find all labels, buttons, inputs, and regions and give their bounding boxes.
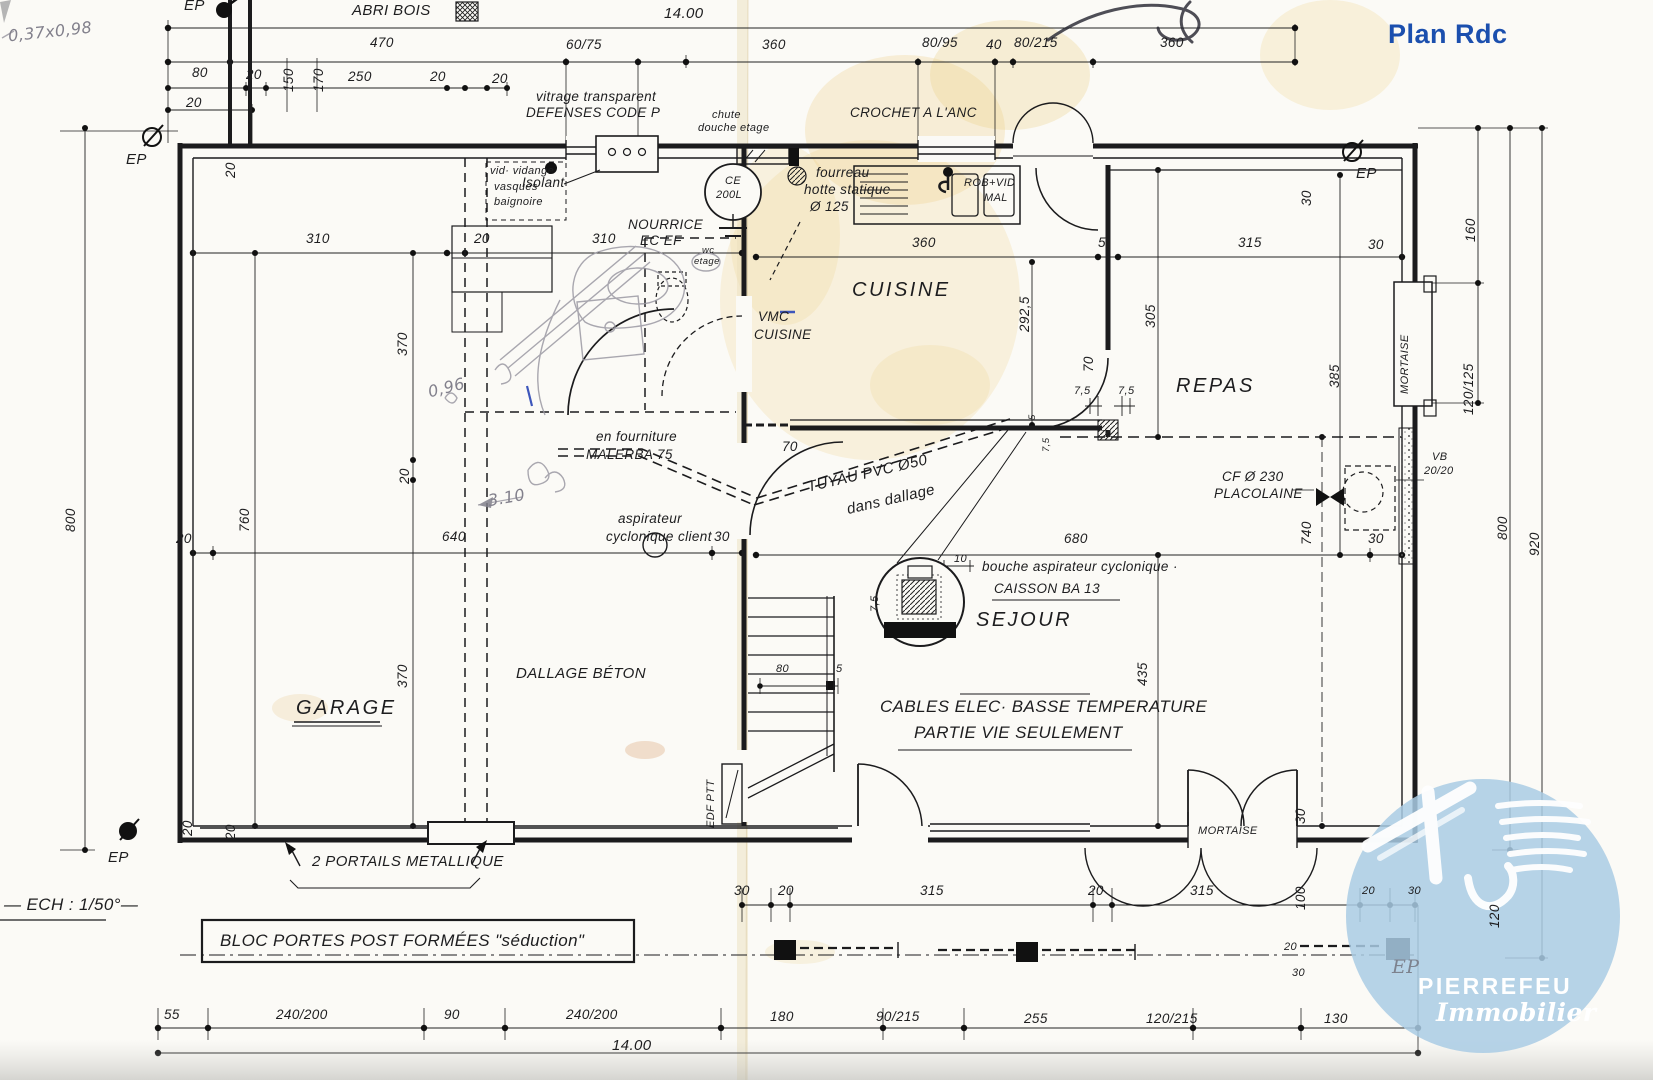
dim-d30: 30: [1294, 808, 1308, 824]
label-chute-1: chute: [712, 110, 741, 122]
dim-10: 10: [954, 554, 967, 566]
dim-b30-c: 30: [1408, 886, 1421, 898]
dim-75-c: 7,5: [1042, 438, 1052, 452]
dim-360-b: 360: [1160, 36, 1184, 50]
dim-75-a: 7,5: [1074, 386, 1091, 398]
dim-800-left: 800: [64, 508, 78, 532]
dim-370-b: 370: [396, 664, 410, 688]
label-fourreau-3: Ø 125: [810, 200, 849, 214]
dim-292-5: 292,5: [1018, 296, 1032, 332]
dim-760: 760: [238, 508, 252, 532]
dim-640: 640: [442, 530, 466, 544]
room-garage: GARAGE: [296, 698, 397, 719]
label-fourreau-1: fourreau: [816, 166, 869, 180]
dim-20-wall-b: 20: [224, 824, 238, 840]
dim-d100: 100: [1294, 886, 1308, 910]
dim-k360: 360: [912, 236, 936, 250]
dim-b30: 30: [734, 884, 750, 898]
dim-overall-bottom: 14.00: [612, 1038, 652, 1054]
dim-m30: 30: [714, 530, 730, 544]
label-rob-1: ROB+VID: [964, 178, 1015, 190]
room-cuisine: CUISINE: [852, 280, 951, 301]
dim-20-row: 20: [474, 232, 490, 246]
dim-70-hall: 70: [782, 440, 798, 454]
label-mortaise-bottom: MORTAISE: [1198, 826, 1258, 838]
label-rob-2: MAL: [984, 193, 1008, 205]
dim-800-right: 800: [1496, 516, 1510, 540]
label-dallage: DALLAGE BÉTON: [516, 666, 646, 682]
label-malerba-1: en fourniture: [596, 430, 677, 444]
label-cf-2: PLACOLAINE: [1214, 487, 1303, 501]
ep-marker-logo: EP: [1392, 958, 1419, 978]
dim-150: 150: [282, 68, 296, 92]
dim-20-mid: 20: [398, 468, 412, 484]
label-portails: 2 PORTAILS METALLIQUE: [312, 854, 504, 870]
dim-385: 385: [1328, 364, 1342, 388]
page-title: Plan Rdc: [1388, 20, 1508, 48]
dim-f55: 55: [164, 1008, 180, 1022]
dim-80-95: 80/95: [922, 36, 958, 50]
label-cf-1: CF Ø 230: [1222, 470, 1283, 484]
dim-20-a: 20: [246, 68, 262, 82]
label-crochet: CROCHET A L'ANC: [850, 106, 977, 120]
dim-370-a: 370: [396, 332, 410, 356]
label-wc-1: wc: [702, 246, 714, 256]
label-vb-2: 20/20: [1424, 466, 1454, 478]
room-sejour: SEJOUR: [976, 610, 1072, 631]
dim-170: 170: [312, 68, 326, 92]
ep-marker-top: EP: [184, 0, 205, 14]
staircase: [748, 596, 834, 798]
dim-160: 160: [1464, 218, 1478, 242]
dim-435: 435: [1136, 662, 1150, 686]
dim-80-215: 80/215: [1014, 36, 1058, 50]
dim-b20-a: 20: [778, 884, 794, 898]
label-cables-1: CABLES ELEC· BASSE TEMPERATURE: [880, 698, 1207, 716]
dim-k315: 315: [1238, 236, 1262, 250]
label-bouche: bouche aspirateur cyclonique ·: [982, 560, 1178, 574]
dim-40: 40: [986, 38, 1002, 52]
dim-20-wall-a: 20: [181, 820, 195, 836]
dim-k5: 5: [1098, 236, 1106, 250]
terrace-posts: [774, 938, 1410, 962]
dim-75-circle: 7,5: [870, 596, 882, 613]
dim-920: 920: [1528, 532, 1542, 556]
label-nourrice-1: NOURRICE: [628, 218, 703, 232]
room-repas: REPAS: [1176, 376, 1255, 397]
label-mortaise-right: MORTAISE: [1400, 334, 1412, 394]
dim-f180: 180: [770, 1010, 794, 1024]
dim-f120-215: 120/215: [1146, 1012, 1198, 1026]
dim-m20: 20: [176, 532, 192, 546]
dim-310-a: 310: [306, 232, 330, 246]
dim-stair-5: 5: [836, 664, 843, 676]
dim-f90-215: 90/215: [876, 1010, 920, 1024]
label-aspirateur-2: cyclonique client: [606, 530, 712, 544]
dim-305: 305: [1144, 304, 1158, 328]
dim-20-corner: 20: [224, 162, 238, 178]
dim-20-b: 20: [430, 70, 446, 84]
label-vmc-2: CUISINE: [754, 328, 812, 342]
dim-360-a: 360: [762, 38, 786, 52]
dim-f90: 90: [444, 1008, 460, 1022]
label-vb-1: VB: [1432, 452, 1447, 464]
ep-marker-left: EP: [126, 152, 147, 168]
label-edf-ptt: EDF PTT: [706, 780, 718, 828]
dim-f240-b: 240/200: [566, 1008, 618, 1022]
dim-5-b: 5: [1028, 414, 1038, 420]
dim-overall-top: 14.00: [664, 6, 704, 22]
dim-f130: 130: [1324, 1012, 1348, 1026]
logo-brand-name: PIERREFEU: [1418, 974, 1572, 998]
label-echelle: — ECH : 1/50°—: [4, 896, 138, 914]
label-isolant: Isolant: [522, 176, 565, 190]
dim-b30-d: 30: [1292, 968, 1305, 980]
dim-20-c: 20: [492, 72, 508, 86]
dim-b315-b: 315: [1190, 884, 1214, 898]
dim-b315-a: 315: [920, 884, 944, 898]
logo-brand-tagline: Immobilier: [1436, 1000, 1596, 1026]
dim-30-top: 30: [1300, 190, 1314, 206]
dim-70-kitchen: 70: [1082, 356, 1096, 372]
label-bloc-portes: BLOC PORTES POST FORMÉES "séduction": [220, 932, 584, 950]
label-abri-bois: ABRI BOIS: [352, 3, 431, 19]
label-wc-2: etage: [694, 257, 720, 267]
dim-120-125: 120/125: [1462, 363, 1476, 415]
ep-marker-bottom-left: EP: [108, 850, 129, 866]
label-aspirateur-1: aspirateur: [618, 512, 682, 526]
dim-250: 250: [348, 70, 372, 84]
dim-b20-d: 20: [1284, 942, 1297, 954]
dim-80: 80: [192, 66, 208, 80]
label-ce-200l: 200L: [716, 190, 742, 202]
label-caisson: CAISSON BA 13: [994, 582, 1100, 596]
dim-75-b: 7,5: [1118, 386, 1135, 398]
dim-680: 680: [1064, 532, 1088, 546]
label-fourreau-2: hotte statique: [804, 183, 891, 197]
dim-120: 120: [1488, 904, 1502, 928]
label-cables-2: PARTIE VIE SEULEMENT: [914, 724, 1123, 742]
dim-f255: 255: [1024, 1012, 1048, 1026]
label-vid-3: baignoire: [494, 197, 543, 209]
label-malerba-2: MALERBA 75: [586, 448, 673, 462]
label-nourrice-2: EC EF: [640, 234, 682, 248]
dim-470: 470: [370, 36, 394, 50]
dim-20-d: 20: [186, 96, 202, 110]
dim-740: 740: [1300, 521, 1314, 545]
scanned-floor-plan: Plan Rdc 0,37x0,98 ABRI BOIS 14.00 470 6…: [0, 0, 1653, 1080]
dim-b20-c: 20: [1362, 886, 1375, 898]
dim-k30: 30: [1368, 238, 1384, 252]
dim-f240-a: 240/200: [276, 1008, 328, 1022]
label-defenses: DEFENSES CODE P: [526, 106, 660, 120]
label-vitrage: vitrage transparent: [536, 90, 656, 104]
label-vmc-1: VMC: [758, 310, 789, 324]
dim-stair-80: 80: [776, 664, 789, 676]
label-ce: CE: [725, 176, 741, 188]
dim-310-b: 310: [592, 232, 616, 246]
scan-shadow: [0, 1040, 1653, 1080]
dim-m30-b: 30: [1368, 532, 1384, 546]
dim-60-75: 60/75: [566, 38, 602, 52]
label-chute-2: douche etage: [698, 123, 769, 135]
plan-linework: [0, 0, 1653, 1080]
ep-marker-right: EP: [1356, 166, 1377, 182]
dim-b20-b: 20: [1088, 884, 1104, 898]
